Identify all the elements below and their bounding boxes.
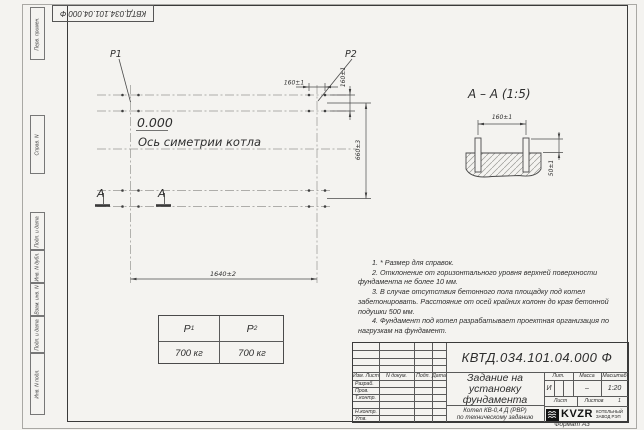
list-label: Лист <box>544 396 577 406</box>
technical-notes: 1. * Размер для справок. 2. Отклонение о… <box>358 258 630 336</box>
kvzr-logo-text: KVZR <box>561 408 593 420</box>
p1-symbol: P <box>184 323 191 335</box>
drawing-sheet: КВТД.034.101.04.000 Ф Перв. примен. Спра… <box>0 0 644 430</box>
row-prov: Пров. <box>353 387 381 394</box>
note-1: 1. * Размер для справок. <box>358 258 630 268</box>
p2-symbol: P <box>247 323 254 335</box>
kvzr-logo-caption: КОТЕЛЬНЫЙ ЗАВОД РЭП <box>596 409 623 419</box>
header-podp: Подп. <box>414 372 432 380</box>
elevation-label: 0.000 <box>137 115 173 130</box>
leader-lines <box>119 59 352 102</box>
note-4: 4. Фундамент под котел разрабатывает про… <box>358 316 630 335</box>
listov-label: Листов <box>577 396 611 406</box>
note-2: 2. Отклонение от горизонтального уровня … <box>358 268 630 287</box>
section-view-title: А – А (1:5) <box>467 87 531 101</box>
masshtab-value: 1:20 <box>601 380 628 396</box>
row-nkontr: Н.контр. <box>353 408 381 415</box>
section-dim-160-text: 160±1 <box>492 114 512 121</box>
header-izm-list: Изм. Лист <box>353 372 379 380</box>
title-block: КВТД.034.101.04.000 Ф Задание на установ… <box>352 342 629 423</box>
p1-label: P1 <box>110 49 122 60</box>
header-masshtab: Масштаб <box>601 372 628 380</box>
massa-value: – <box>573 380 601 396</box>
anchor-stud-left <box>475 138 481 172</box>
dim-660-lines <box>327 103 371 199</box>
p2-subscript: 2 <box>254 325 258 332</box>
title-block-designation: КВТД.034.101.04.000 Ф <box>446 343 628 372</box>
logo-caption-line: ЗАВОД РЭП <box>596 414 623 419</box>
lit-value: И <box>544 380 554 396</box>
section-dim-160-lines <box>478 120 526 135</box>
note-3: 3. В случае отсутствия бетонного пола пл… <box>358 287 630 316</box>
center-lines <box>97 85 357 283</box>
header-massa: Масса <box>573 372 601 380</box>
load-table-header-p1: P1 <box>159 316 219 341</box>
dim-660-text: 660±3 <box>355 140 362 160</box>
axis-of-symmetry-label: Ось симетрии котла <box>138 135 261 149</box>
header-data: Дата <box>432 372 446 380</box>
subtitle-line: Котел КВ-0,4 Д (РВР) <box>463 407 526 415</box>
subtitle-line: по техническому заданию <box>457 414 533 422</box>
dim-160-right-text: 160±1 <box>340 67 347 87</box>
p2-label: P2 <box>345 49 357 60</box>
anchor-stud-right <box>523 138 529 172</box>
load-table-value-p1: 700 кг <box>159 341 219 364</box>
title-line: установку <box>469 384 521 395</box>
listov-value: 1 <box>611 396 628 406</box>
load-table-header-p2: P2 <box>219 316 284 341</box>
title-line: Задание на <box>467 373 523 384</box>
row-utv: Утв. <box>353 415 381 422</box>
section-dim-50-text: 50±1 <box>548 160 555 176</box>
row-razrab: Разраб. <box>353 380 381 387</box>
kvzr-logo-icon <box>546 409 559 421</box>
load-table-value-p2: 700 кг <box>219 341 284 364</box>
row-tkontr: Т.контр. <box>353 394 381 401</box>
header-n-docum: N докум. <box>379 372 414 380</box>
load-table: P1 P2 700 кг 700 кг <box>158 315 284 364</box>
dim-160-top-text: 160±1 <box>284 80 304 87</box>
document-title: Задание на установку фундамента <box>446 373 544 405</box>
title-line: фундамента <box>463 395 528 406</box>
document-subtitle: Котел КВ-0,4 Д (РВР) по техническому зад… <box>446 406 544 422</box>
p1-subscript: 1 <box>191 325 195 332</box>
header-lit: Лит. <box>544 372 573 380</box>
dim-1640-text: 1640±2 <box>210 270 236 278</box>
format-label: Формат А3 <box>532 421 612 428</box>
